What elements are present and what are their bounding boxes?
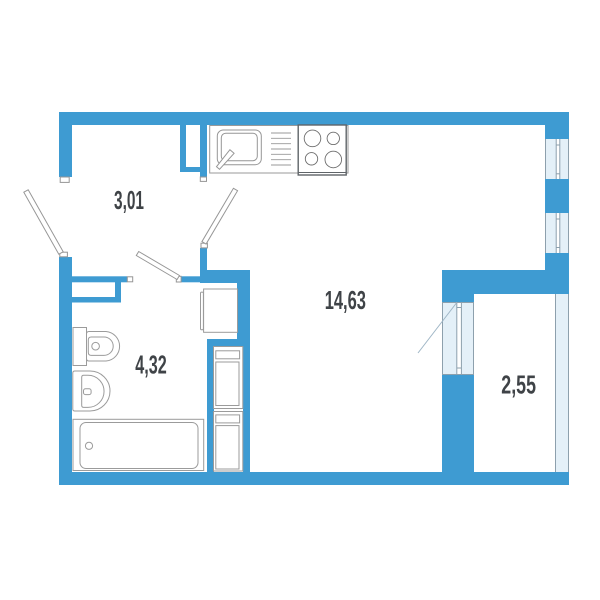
svg-text:14,63: 14,63 bbox=[325, 285, 366, 315]
svg-text:4,32: 4,32 bbox=[135, 350, 167, 380]
svg-text:2,55: 2,55 bbox=[501, 369, 536, 399]
svg-text:3,01: 3,01 bbox=[114, 185, 144, 215]
